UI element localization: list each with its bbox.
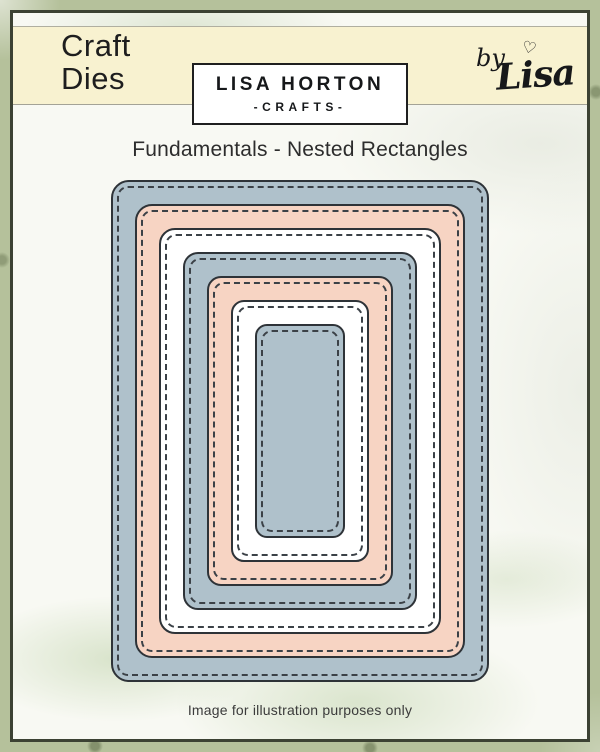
- rectangle-die-2: [135, 204, 465, 658]
- product-type-label: Craft Dies: [61, 29, 131, 95]
- brand-name: LISA HORTON: [216, 74, 384, 96]
- product-title: Fundamentals - Nested Rectangles: [13, 138, 587, 162]
- product-type-line2: Dies: [61, 62, 131, 95]
- brand-logo-box: LISA HORTON -CRAFTS-: [192, 63, 408, 125]
- brand-subtitle: -CRAFTS-: [254, 100, 347, 114]
- product-image: Craft Dies LISA HORTON -CRAFTS- by ♡ Lis…: [0, 0, 600, 752]
- rectangle-die-4: [183, 252, 417, 610]
- nested-dies-illustration: [111, 180, 489, 682]
- rectangle-die-7-smallest: [255, 324, 345, 538]
- rectangle-die-1-largest: [111, 180, 489, 682]
- rectangle-die-3: [159, 228, 441, 634]
- disclaimer-text: Image for illustration purposes only: [0, 702, 600, 718]
- signature-name: Lisa: [495, 51, 576, 98]
- rectangle-die-6: [231, 300, 369, 562]
- rectangle-die-5: [207, 276, 393, 586]
- by-lisa-signature-logo: by ♡ Lisa: [470, 38, 580, 100]
- product-type-line1: Craft: [61, 29, 131, 62]
- stitch-line-7: [261, 330, 339, 532]
